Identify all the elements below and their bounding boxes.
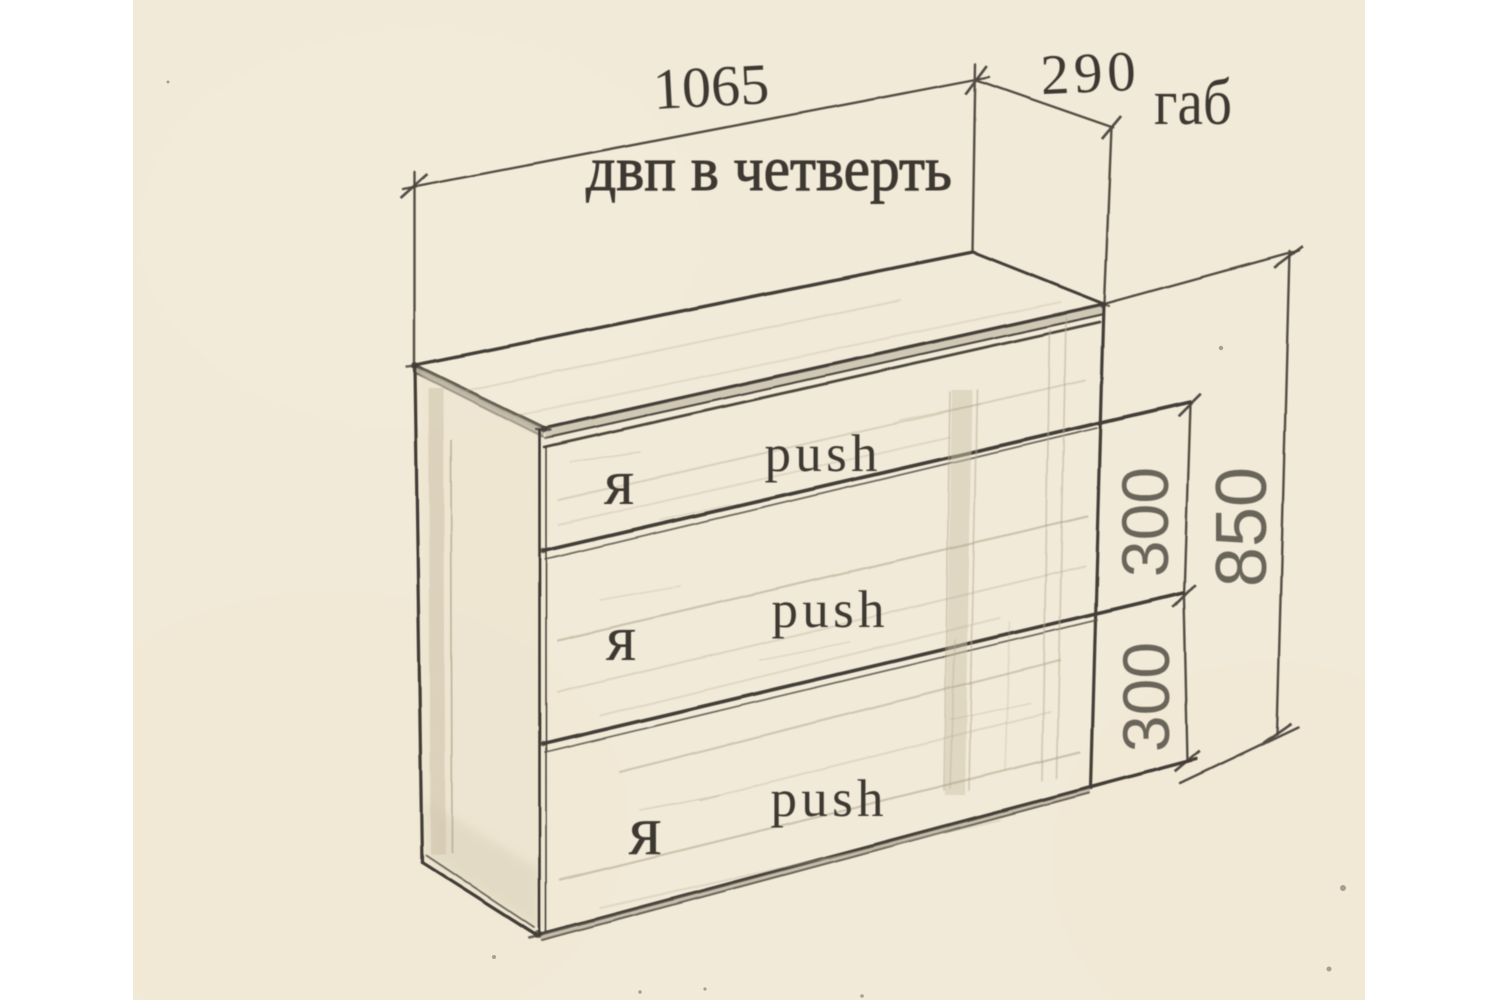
svg-text:1065: 1065 bbox=[651, 51, 770, 122]
svg-text:850: 850 bbox=[1202, 467, 1282, 587]
svg-text:push: push bbox=[765, 425, 878, 483]
svg-text:я: я bbox=[604, 446, 634, 519]
svg-text:300: 300 bbox=[1108, 467, 1182, 577]
svg-text:двп в четверть: двп в четверть bbox=[586, 133, 952, 204]
svg-text:push: push bbox=[771, 770, 884, 828]
svg-text:300: 300 bbox=[1109, 642, 1183, 752]
svg-text:290: 290 bbox=[1039, 40, 1137, 107]
svg-text:я: я bbox=[606, 602, 636, 675]
svg-text:габ: габ bbox=[1154, 66, 1232, 139]
svg-text:push: push bbox=[772, 581, 885, 639]
svg-text:я: я bbox=[628, 790, 661, 870]
